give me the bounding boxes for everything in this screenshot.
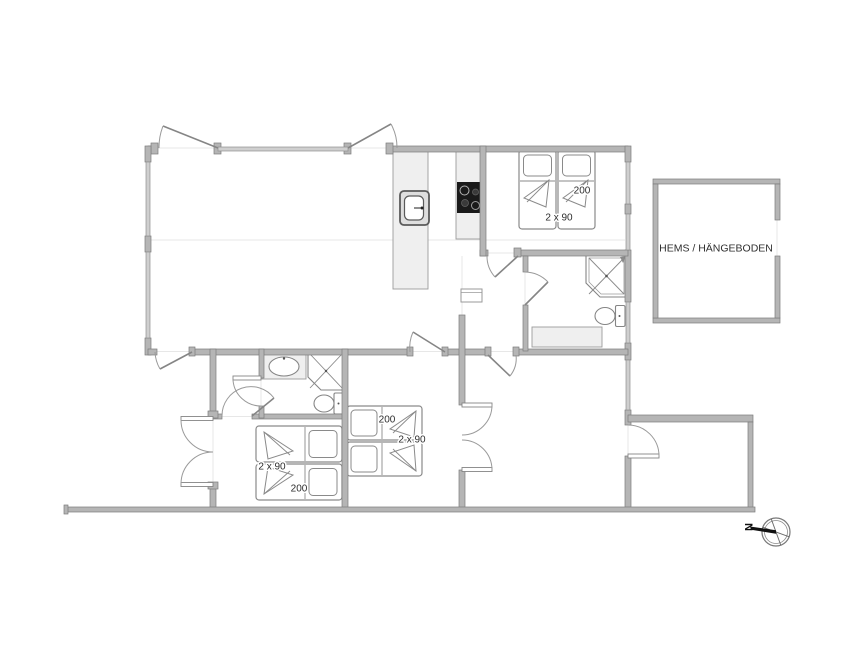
door <box>155 352 192 369</box>
compass-north-label: N <box>744 523 756 531</box>
entrance-double-door <box>181 417 213 487</box>
door <box>487 256 518 277</box>
kitchen-sink-icon <box>400 191 429 225</box>
window <box>146 162 150 236</box>
kitchen-area <box>393 151 483 302</box>
floor-plan: 200 2 x 90 2 x 90 200 <box>0 0 852 667</box>
door <box>233 376 261 406</box>
window <box>146 252 150 338</box>
kitchen-shelf <box>461 289 482 302</box>
bed-width-label: 2 x 90 <box>258 462 286 473</box>
door <box>628 425 659 458</box>
bed-width-label: 2 x 90 <box>398 435 426 446</box>
double-door <box>462 403 492 472</box>
pillow <box>524 155 552 176</box>
door <box>159 126 218 148</box>
bed-width-label: 2 x 90 <box>545 213 573 224</box>
door <box>410 332 445 352</box>
window <box>626 360 630 410</box>
bedroom-bottom-middle: 200 2 x 90 <box>347 406 426 476</box>
bed-length-label: 200 <box>574 186 591 197</box>
pillow <box>309 469 337 496</box>
door <box>222 387 274 416</box>
bedroom-top-right: 200 2 x 90 <box>519 150 595 229</box>
bathroom-bottom <box>262 352 344 414</box>
washbasin-icon <box>269 357 299 376</box>
bathroom-bench <box>532 327 602 347</box>
bathroom-top-right <box>532 255 627 347</box>
hems-room-label: HEMS / HÄNGEBODEN <box>659 243 773 255</box>
toilet-icon <box>595 306 625 327</box>
baseline-wall <box>65 507 755 512</box>
floor-plan-page: 200 2 x 90 2 x 90 200 <box>0 0 852 667</box>
door <box>488 355 516 376</box>
bed-icon <box>347 442 422 476</box>
bedroom-bottom-left: 2 x 90 200 <box>256 426 342 500</box>
window <box>626 302 630 343</box>
shower-icon-2 <box>308 352 344 390</box>
toilet-icon-2 <box>314 393 344 414</box>
cooktop-icon <box>457 182 483 213</box>
window <box>626 214 630 250</box>
compass-icon: N <box>744 518 791 546</box>
pillow <box>351 410 377 436</box>
door <box>525 272 548 305</box>
pillow <box>563 155 591 176</box>
window <box>218 147 348 151</box>
shower-icon <box>586 255 627 297</box>
pillow <box>351 446 377 472</box>
bed-length-label: 200 <box>379 415 396 426</box>
window <box>626 162 630 204</box>
hems-room: HEMS / HÄNGEBODEN <box>659 243 773 255</box>
bed-icon <box>256 426 342 462</box>
bed-length-label: 200 <box>291 484 308 495</box>
pillow <box>309 431 337 458</box>
